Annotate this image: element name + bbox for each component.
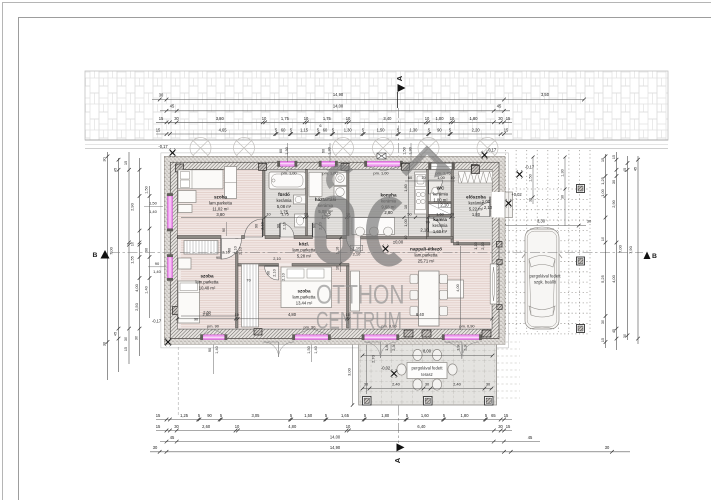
svg-text:45: 45 <box>528 435 533 440</box>
svg-text:1,10: 1,10 <box>473 241 478 249</box>
svg-text:90: 90 <box>216 256 220 260</box>
svg-text:10: 10 <box>235 424 240 429</box>
svg-text:45: 45 <box>622 168 627 172</box>
svg-text:3,80: 3,80 <box>216 116 225 121</box>
svg-text:90: 90 <box>208 348 212 352</box>
svg-text:A: A <box>393 457 402 463</box>
svg-text:B: B <box>93 252 98 259</box>
svg-text:1,65: 1,65 <box>341 413 350 418</box>
svg-text:terasz: terasz <box>421 372 432 377</box>
svg-text:2,90: 2,90 <box>611 199 616 207</box>
svg-text:pm. 90: pm. 90 <box>207 323 220 328</box>
svg-text:pm. 90,: pm. 90, <box>304 324 317 329</box>
svg-text:1,80: 1,80 <box>461 413 470 418</box>
svg-text:30: 30 <box>498 424 503 429</box>
svg-text:lam.parketta: lam.parketta <box>414 252 438 257</box>
svg-text:1,50: 1,50 <box>403 147 407 154</box>
svg-text:2,10: 2,10 <box>273 269 277 276</box>
svg-text:2,10: 2,10 <box>484 205 493 210</box>
svg-text:10: 10 <box>262 116 267 121</box>
svg-text:1,50: 1,50 <box>377 128 386 133</box>
svg-text:90: 90 <box>207 413 212 418</box>
svg-text:OTTHON: OTTHON <box>316 280 405 310</box>
svg-text:1,25: 1,25 <box>180 413 189 418</box>
svg-text:5,25: 5,25 <box>600 274 605 283</box>
svg-text:4,00: 4,00 <box>455 283 460 291</box>
svg-text:14,90: 14,90 <box>330 445 341 450</box>
svg-text:B: B <box>652 253 657 260</box>
svg-text:14,00: 14,00 <box>333 103 344 108</box>
svg-text:2,70: 2,70 <box>371 354 376 363</box>
svg-text:25,71 m²: 25,71 m² <box>418 258 435 263</box>
svg-text:4,80: 4,80 <box>288 424 297 429</box>
svg-text:pergolával fedett: pergolával fedett <box>412 365 444 370</box>
svg-text:4,00: 4,00 <box>134 283 139 292</box>
svg-text:1,75: 1,75 <box>281 211 289 216</box>
svg-text:kerámia: kerámia <box>433 191 449 196</box>
svg-text:5,28 m²: 5,28 m² <box>297 253 312 258</box>
svg-text:15: 15 <box>506 424 511 429</box>
svg-text:4,65: 4,65 <box>219 128 228 133</box>
svg-text:1,50: 1,50 <box>307 346 311 353</box>
svg-text:3,40: 3,40 <box>383 116 392 121</box>
svg-text:3,80: 3,80 <box>216 212 225 217</box>
svg-text:1,00: 1,00 <box>600 188 605 196</box>
svg-text:11,02 m²: 11,02 m² <box>212 206 229 211</box>
svg-text:2,50: 2,50 <box>134 302 139 311</box>
svg-text:1,40: 1,40 <box>314 346 318 353</box>
svg-text:2,10: 2,10 <box>273 257 280 261</box>
svg-text:30: 30 <box>587 219 592 224</box>
svg-text:1,60: 1,60 <box>421 413 430 418</box>
svg-text:2,10: 2,10 <box>239 247 243 254</box>
svg-text:30: 30 <box>135 336 139 340</box>
svg-text:pm. 1,00: pm. 1,00 <box>281 170 297 175</box>
svg-text:6: 6 <box>319 123 321 128</box>
svg-text:2,10: 2,10 <box>420 227 429 232</box>
svg-text:1,00: 1,00 <box>482 199 491 204</box>
svg-text:15: 15 <box>504 413 509 418</box>
svg-text:-0,17: -0,17 <box>152 318 162 323</box>
svg-text:-0,17: -0,17 <box>487 147 497 152</box>
svg-text:10: 10 <box>425 116 430 121</box>
svg-text:45: 45 <box>497 104 502 109</box>
svg-text:4,80: 4,80 <box>288 312 297 317</box>
svg-text:kerámia: kerámia <box>433 223 449 228</box>
svg-text:15: 15 <box>504 128 509 133</box>
svg-text:1,30: 1,30 <box>409 147 413 154</box>
svg-text:1,40: 1,40 <box>215 346 219 353</box>
svg-text:10: 10 <box>404 235 408 239</box>
svg-text:nappali-étkező: nappali-étkező <box>410 247 442 252</box>
svg-text:1,00: 1,00 <box>436 116 445 121</box>
svg-text:2,60: 2,60 <box>202 424 211 429</box>
svg-text:1,75: 1,75 <box>323 116 332 121</box>
svg-text:90: 90 <box>155 261 160 266</box>
svg-text:1,80: 1,80 <box>403 183 408 191</box>
svg-text:14,00: 14,00 <box>330 435 341 440</box>
svg-text:30: 30 <box>159 93 164 98</box>
svg-text:-0,02: -0,02 <box>381 365 391 370</box>
svg-text:közl.: közl. <box>299 242 309 247</box>
svg-text:2,10: 2,10 <box>261 222 265 229</box>
svg-text:30: 30 <box>498 116 503 121</box>
svg-text:90: 90 <box>277 224 281 228</box>
svg-text:4,00: 4,00 <box>611 274 616 283</box>
svg-text:30: 30 <box>605 445 610 450</box>
svg-text:90: 90 <box>437 128 442 133</box>
svg-text:1,80: 1,80 <box>470 116 479 121</box>
svg-text:15: 15 <box>601 338 605 342</box>
svg-text:1,50: 1,50 <box>149 201 158 206</box>
svg-text:45: 45 <box>633 167 637 171</box>
svg-text:szoba: szoba <box>200 274 213 279</box>
svg-text:-0,17: -0,17 <box>525 164 535 169</box>
svg-text:45: 45 <box>113 168 118 172</box>
svg-text:kamra: kamra <box>433 217 447 222</box>
svg-text:+0,02: +0,02 <box>511 192 522 197</box>
svg-text:szoba: szoba <box>214 195 227 200</box>
svg-text:15: 15 <box>156 413 161 418</box>
svg-text:szgk. beálló: szgk. beálló <box>534 280 557 285</box>
svg-text:10: 10 <box>131 242 135 246</box>
svg-text:1,60: 1,60 <box>436 211 444 216</box>
svg-text:lam.parketta: lam.parketta <box>195 279 219 284</box>
svg-text:1,40: 1,40 <box>149 209 158 214</box>
svg-text:1,15: 1,15 <box>300 128 309 133</box>
svg-text:60: 60 <box>323 128 328 133</box>
svg-text:15: 15 <box>506 116 511 121</box>
svg-text:1,55: 1,55 <box>130 256 135 264</box>
svg-text:2,80: 2,80 <box>384 210 393 215</box>
svg-text:A: A <box>395 75 404 81</box>
svg-text:30: 30 <box>174 424 179 429</box>
svg-text:30: 30 <box>153 445 158 450</box>
svg-text:30: 30 <box>601 320 605 324</box>
svg-text:lam.parketta: lam.parketta <box>292 247 316 252</box>
svg-text:kerámia: kerámia <box>277 198 293 203</box>
svg-text:10: 10 <box>346 424 351 429</box>
svg-text:90: 90 <box>222 228 226 232</box>
svg-text:2,90: 2,90 <box>130 202 135 211</box>
svg-text:15: 15 <box>612 155 616 159</box>
svg-text:45: 45 <box>170 435 175 440</box>
svg-text:2,10: 2,10 <box>480 241 485 249</box>
svg-text:lam.parketta: lam.parketta <box>209 200 233 205</box>
svg-text:7,90: 7,90 <box>628 245 633 254</box>
svg-text:10: 10 <box>450 116 455 121</box>
svg-text:90: 90 <box>194 317 198 321</box>
svg-text:10: 10 <box>304 116 309 121</box>
svg-text:2,40: 2,40 <box>392 382 401 387</box>
svg-text:1,50: 1,50 <box>528 174 532 181</box>
svg-text:2,10: 2,10 <box>440 203 449 208</box>
svg-text:8,00: 8,00 <box>423 349 432 354</box>
svg-text:WC: WC <box>437 186 445 191</box>
svg-text:1,00: 1,00 <box>403 218 408 226</box>
svg-text:3,00: 3,00 <box>347 367 352 376</box>
svg-text:45: 45 <box>612 329 616 333</box>
svg-text:1,30: 1,30 <box>285 147 289 154</box>
svg-text:45: 45 <box>170 104 175 109</box>
svg-text:10: 10 <box>346 116 351 121</box>
svg-text:30: 30 <box>560 195 564 199</box>
svg-text:15: 15 <box>600 158 605 162</box>
svg-text:1,80: 1,80 <box>381 413 390 418</box>
svg-text:15: 15 <box>123 161 128 165</box>
svg-text:-0,17: -0,17 <box>158 144 168 149</box>
svg-text:45: 45 <box>113 332 118 336</box>
svg-text:pm. 0,90: pm. 0,90 <box>459 323 475 328</box>
svg-text:15: 15 <box>156 424 161 429</box>
svg-text:1,30: 1,30 <box>344 128 353 133</box>
svg-text:1,80: 1,80 <box>472 212 481 217</box>
svg-text:7,00: 7,00 <box>109 246 114 255</box>
svg-text:15: 15 <box>124 347 128 351</box>
svg-text:1,40: 1,40 <box>145 286 149 293</box>
svg-text:1,50: 1,50 <box>145 186 149 193</box>
svg-text:10: 10 <box>456 241 460 245</box>
svg-text:2,10: 2,10 <box>283 222 287 229</box>
svg-text:3,30: 3,30 <box>537 219 546 224</box>
svg-text:1,30: 1,30 <box>409 128 418 133</box>
svg-text:3,50: 3,50 <box>541 92 550 97</box>
svg-text:1,40: 1,40 <box>153 269 162 274</box>
svg-text:1,50: 1,50 <box>304 413 313 418</box>
svg-text:lam.parketta: lam.parketta <box>292 294 316 299</box>
svg-text:10: 10 <box>601 237 605 241</box>
svg-text:30: 30 <box>528 198 532 202</box>
svg-text:CENTRUM: CENTRUM <box>316 308 402 335</box>
svg-text:14,90: 14,90 <box>333 92 344 97</box>
svg-text:3,05: 3,05 <box>251 413 260 418</box>
svg-text:10,40 m²: 10,40 m² <box>199 285 216 290</box>
svg-text:60: 60 <box>279 149 283 153</box>
svg-text:15: 15 <box>156 128 161 133</box>
svg-text:6,40: 6,40 <box>416 312 425 317</box>
svg-text:1,75: 1,75 <box>281 116 290 121</box>
svg-text:60: 60 <box>322 149 326 153</box>
svg-text:90: 90 <box>267 271 271 275</box>
svg-text:1,60 m²: 1,60 m² <box>433 229 448 234</box>
svg-text:5,22 m²: 5,22 m² <box>469 206 484 211</box>
svg-text:90: 90 <box>255 224 259 228</box>
svg-text:60: 60 <box>281 128 286 133</box>
svg-text:6,40: 6,40 <box>417 424 426 429</box>
svg-text:1,30: 1,30 <box>328 147 332 154</box>
svg-text:7,00: 7,00 <box>618 244 623 253</box>
svg-text:30: 30 <box>174 116 179 121</box>
svg-text:5,08 m²: 5,08 m² <box>277 204 292 209</box>
svg-text:2,40: 2,40 <box>453 382 462 387</box>
svg-text:1,25: 1,25 <box>600 177 605 185</box>
svg-text:10: 10 <box>336 266 340 270</box>
svg-text:pergolával fedett: pergolával fedett <box>530 274 562 279</box>
svg-text:13,44 m²: 13,44 m² <box>296 300 313 305</box>
svg-text:65: 65 <box>491 413 496 418</box>
svg-text:szoba: szoba <box>297 289 310 294</box>
svg-text:fürdő: fürdő <box>278 192 290 197</box>
svg-text:2,20: 2,20 <box>472 128 481 133</box>
svg-text:90: 90 <box>145 248 149 252</box>
svg-text:30: 30 <box>124 337 128 341</box>
svg-text:2,10: 2,10 <box>353 251 362 256</box>
svg-text:pm. 1,00: pm. 1,00 <box>373 170 389 175</box>
svg-text:±0,00: ±0,00 <box>393 239 404 244</box>
svg-text:2,60: 2,60 <box>203 309 211 314</box>
svg-text:30: 30 <box>623 334 627 338</box>
svg-text:1,30: 1,30 <box>560 169 564 176</box>
svg-text:2,10: 2,10 <box>282 273 286 280</box>
svg-text:15: 15 <box>159 116 164 121</box>
